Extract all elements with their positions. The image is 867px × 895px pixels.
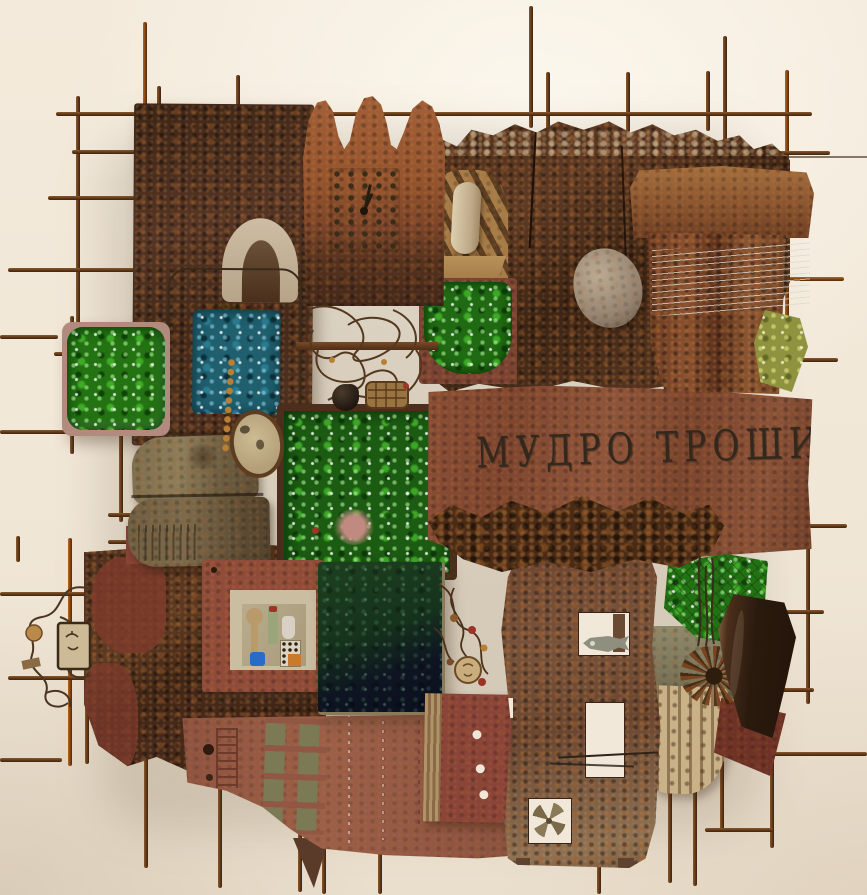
rebar-rod: [119, 426, 123, 522]
rebar-rod: [143, 22, 147, 114]
rebar-rod: [8, 268, 138, 272]
orange-square: [288, 654, 301, 666]
clock-center: [360, 207, 368, 215]
flap-notch: [206, 774, 213, 781]
vessel-rim: [630, 166, 814, 238]
dotted-line: [418, 710, 420, 830]
rebar-rod: [48, 196, 140, 200]
rebar-rod: [798, 358, 838, 362]
slat-stripes: [423, 693, 442, 821]
bone-amulet: [450, 181, 482, 254]
pink-spot: [334, 509, 374, 545]
crown-relic: [303, 94, 445, 306]
slat-hole: [472, 730, 481, 739]
rebar-rod: [706, 71, 710, 131]
rebar-rod: [144, 750, 148, 868]
canteen-ribs: [138, 524, 201, 561]
collage-picture: [242, 604, 306, 666]
rebar-rod: [805, 524, 847, 528]
wire-tangle: [298, 290, 442, 440]
slat-hole: [479, 790, 488, 799]
pinwheel-cutout: [528, 798, 572, 844]
rebar-rod: [0, 335, 58, 339]
clock-plate: [330, 168, 400, 252]
teal-glass-panel: [192, 310, 281, 415]
rebar-rod: [72, 150, 140, 154]
twig-branches: [686, 556, 730, 648]
collage-frame: [202, 560, 324, 692]
trinket-cluster: [424, 578, 508, 708]
red-slat: [423, 693, 515, 823]
tower-foot: [618, 858, 634, 868]
rebar-rod: [56, 112, 138, 116]
rebar-rod: [0, 758, 62, 762]
tiny-jug: [282, 616, 295, 639]
rebar-rod: [720, 760, 724, 832]
slat-hole: [476, 764, 485, 773]
rebar-rod: [16, 536, 20, 562]
inscription-text: МУДРО ТРОШИ: [475, 417, 824, 477]
red-dot: [312, 527, 319, 534]
drawn-ladder: [216, 728, 238, 788]
green-tile-left-backing: [62, 322, 170, 436]
dotted-line: [382, 712, 384, 840]
canteen-bottom: [127, 497, 270, 567]
flap-hole: [203, 744, 214, 755]
dark-knob: [332, 384, 359, 411]
crust-highlight: [428, 130, 790, 156]
rebar-rod: [546, 72, 550, 130]
tower-cutout: [498, 552, 662, 868]
blue-chunk: [250, 652, 265, 666]
dotted-line: [348, 714, 350, 844]
rebar-rod: [782, 688, 814, 692]
green-glass-tile: [67, 327, 165, 430]
rebar-rod: [255, 112, 812, 116]
strung-wires: [652, 242, 810, 316]
tower-foot: [516, 858, 530, 868]
olive-glass-chunk: [754, 310, 808, 392]
rebar-rod: [626, 72, 630, 132]
rebar-rod: [705, 828, 773, 832]
wire-spiral-ornament: [20, 583, 116, 717]
rebar-rod: [529, 6, 533, 128]
nail-hole: [211, 567, 217, 573]
rebar-rod: [298, 828, 302, 892]
rebar-rod: [782, 610, 824, 614]
artwork-photo: МУДРО ТРОШИ: [0, 0, 867, 895]
